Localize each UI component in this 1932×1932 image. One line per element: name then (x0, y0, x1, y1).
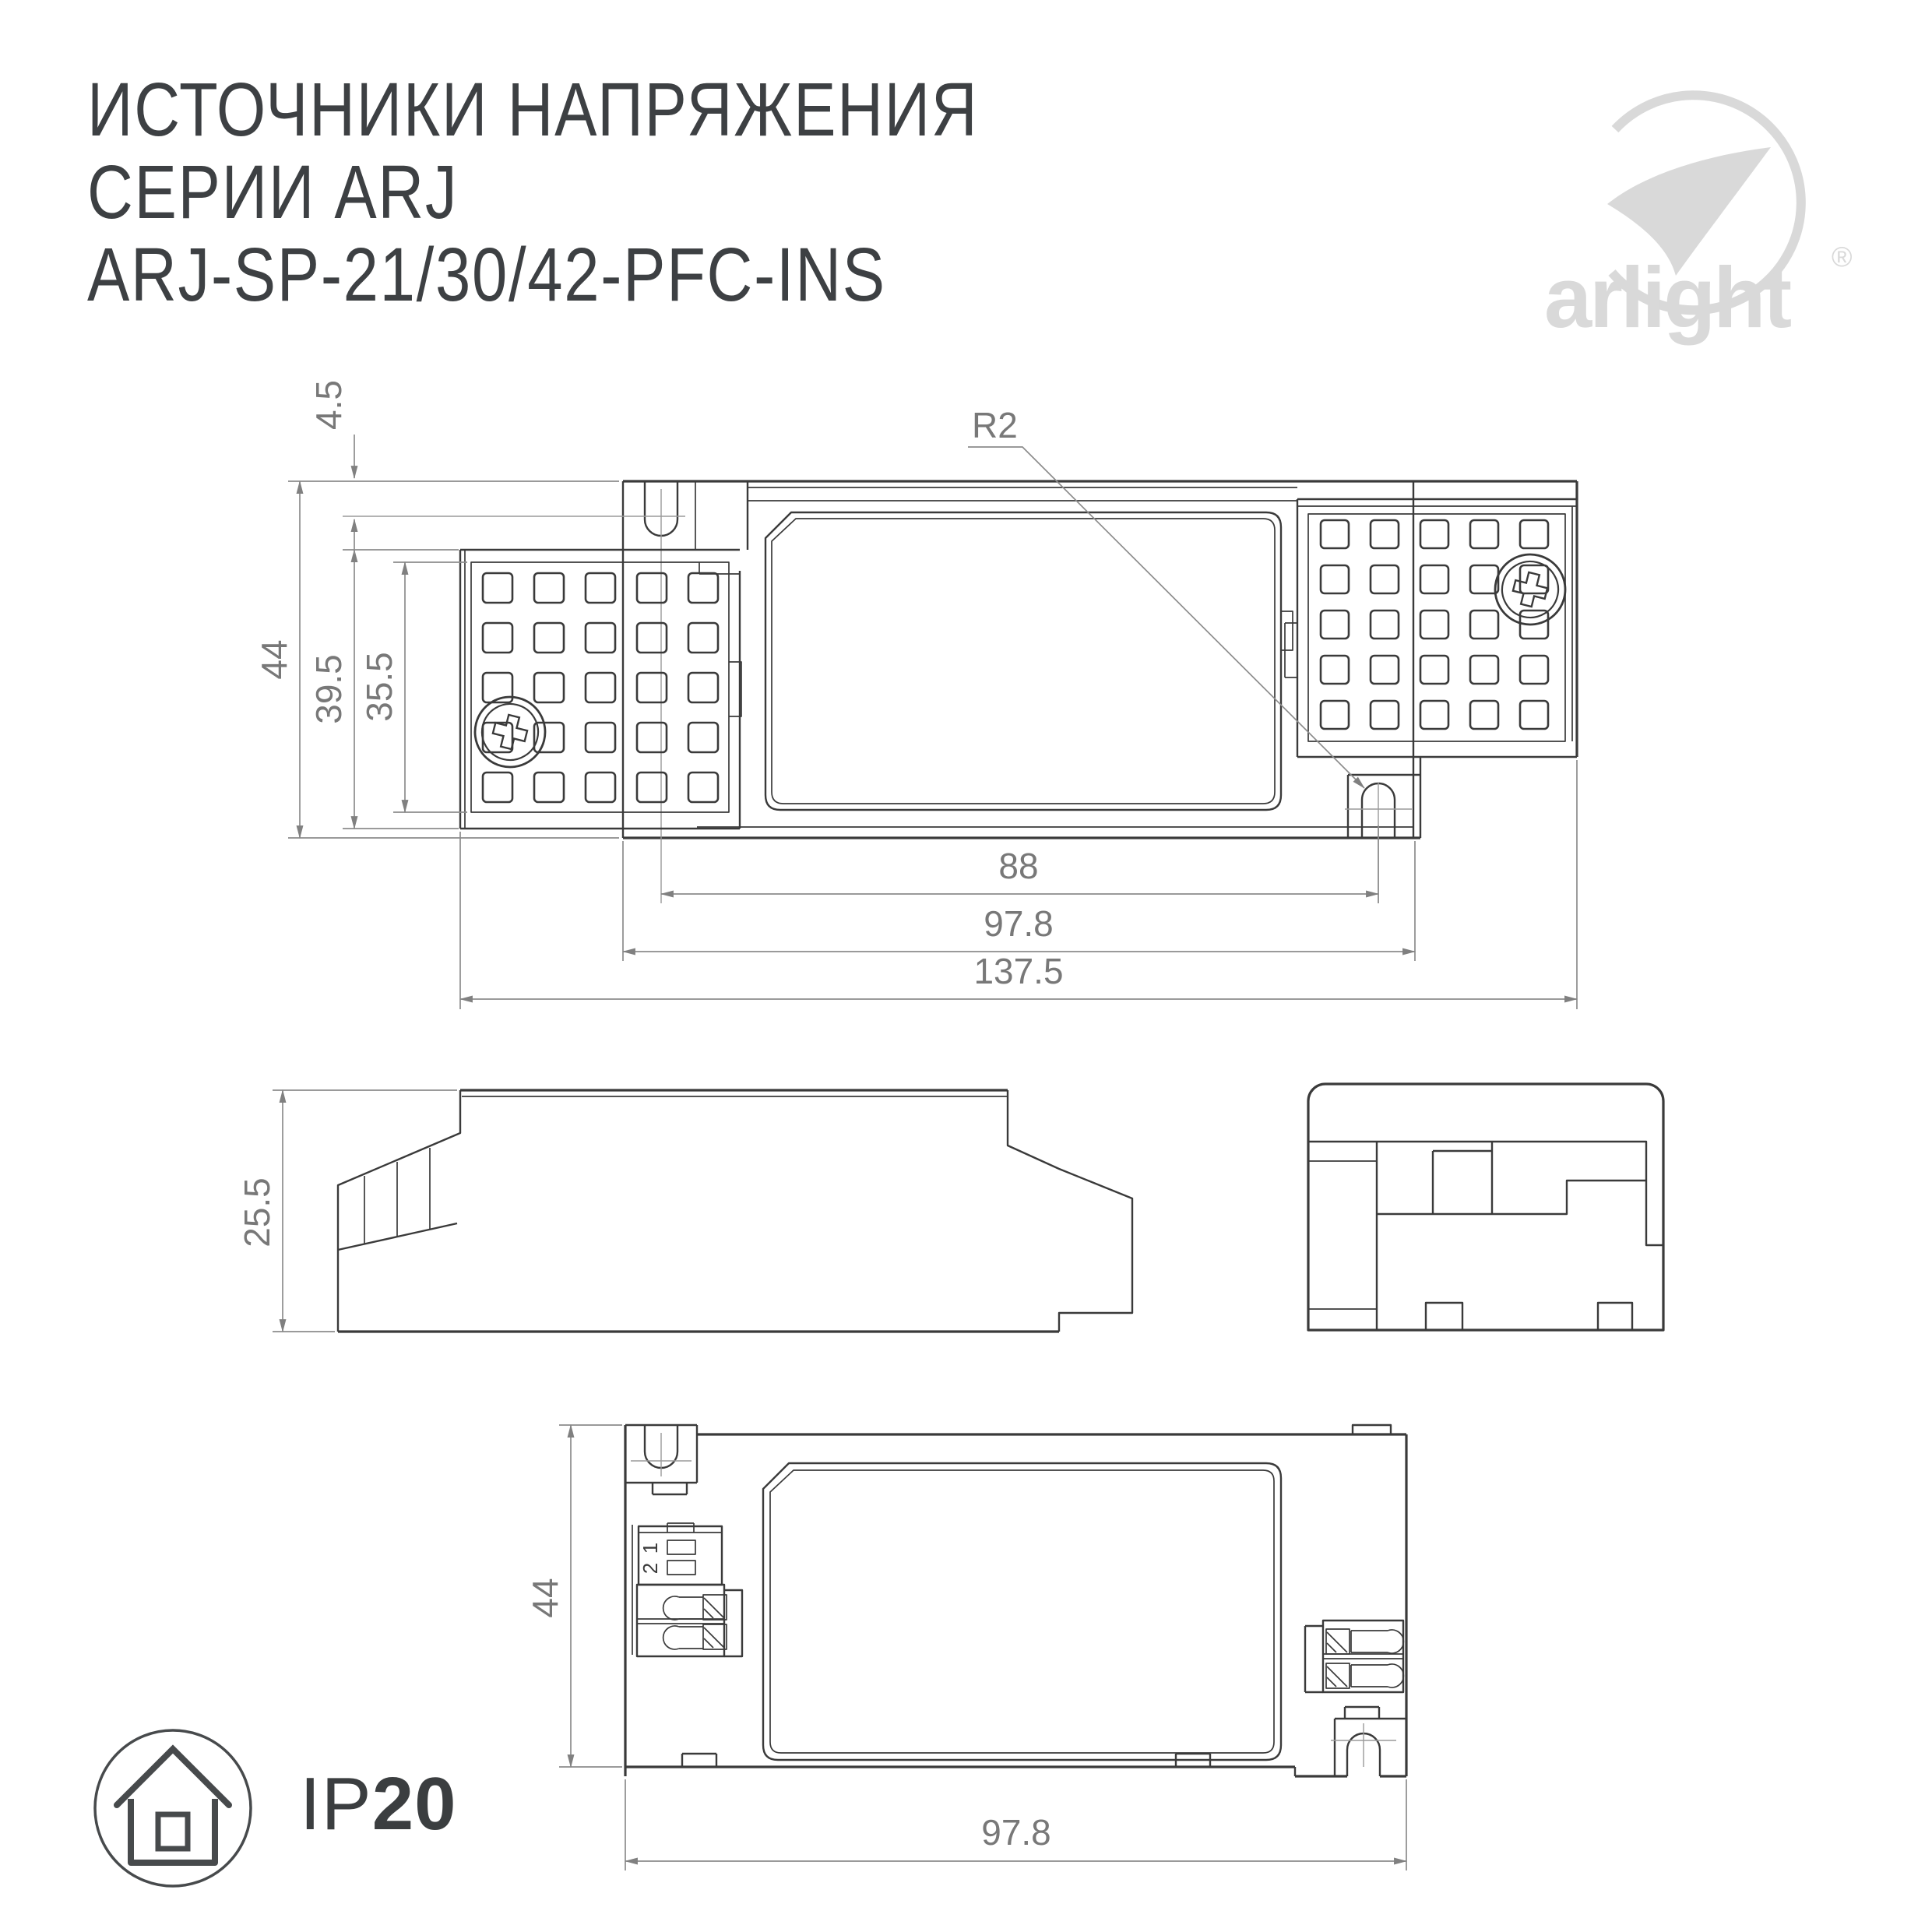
dim-overall-height: 44 (254, 639, 294, 679)
bottom-view: 1 2 (525, 1425, 1406, 1870)
dim-overall-length: 137.5 (973, 951, 1063, 991)
right-wing-panel (1285, 481, 1577, 757)
screw-icon (1487, 547, 1572, 632)
side-view-dimensions: 25.5 (237, 1090, 457, 1332)
terminal-label-2: 2 (639, 1563, 662, 1574)
lid-latch-tab (1281, 611, 1293, 650)
end-view (1308, 1084, 1663, 1330)
dim-notch-offset: 4.5 (308, 380, 349, 430)
left-wing-panel (460, 550, 741, 829)
ip-rating: IP20 (300, 1761, 456, 1847)
dip-connector: 1 2 (632, 1523, 722, 1655)
top-view: 44 39.5 35.5 4.5 88 97.8 137.5 R2 (254, 380, 1577, 1009)
terminal-label-1: 1 (639, 1543, 662, 1554)
datasheet-page: ИСТОЧНИКИ НАПРЯЖЕНИЯ СЕРИИ ARJ ARJ-SP-21… (0, 0, 1932, 1932)
indoor-house-icon (95, 1730, 251, 1886)
terminal-block-right (1305, 1621, 1403, 1692)
dim-bottom-length: 97.8 (981, 1812, 1051, 1853)
terminal-block-left (637, 1585, 742, 1656)
dim-radius-label: R2 (972, 405, 1018, 445)
dim-panel-height: 35.5 (359, 652, 399, 722)
dim-body-length: 97.8 (984, 903, 1054, 944)
technical-drawing: 44 39.5 35.5 4.5 88 97.8 137.5 R2 (0, 0, 1932, 1932)
vent-grid-right (1321, 520, 1548, 729)
ip-value: 20 (372, 1762, 457, 1846)
vent-grid-left (483, 573, 718, 802)
ip-prefix: IP (300, 1762, 372, 1846)
dim-side-height: 25.5 (237, 1177, 277, 1248)
top-view-dimensions: 44 39.5 35.5 4.5 88 97.8 137.5 R2 (254, 380, 1577, 1009)
dim-wing-height: 39.5 (308, 654, 349, 724)
dim-bottom-width: 44 (525, 1578, 565, 1617)
dim-hole-spacing: 88 (998, 846, 1038, 886)
side-view: 25.5 (237, 1090, 1132, 1332)
